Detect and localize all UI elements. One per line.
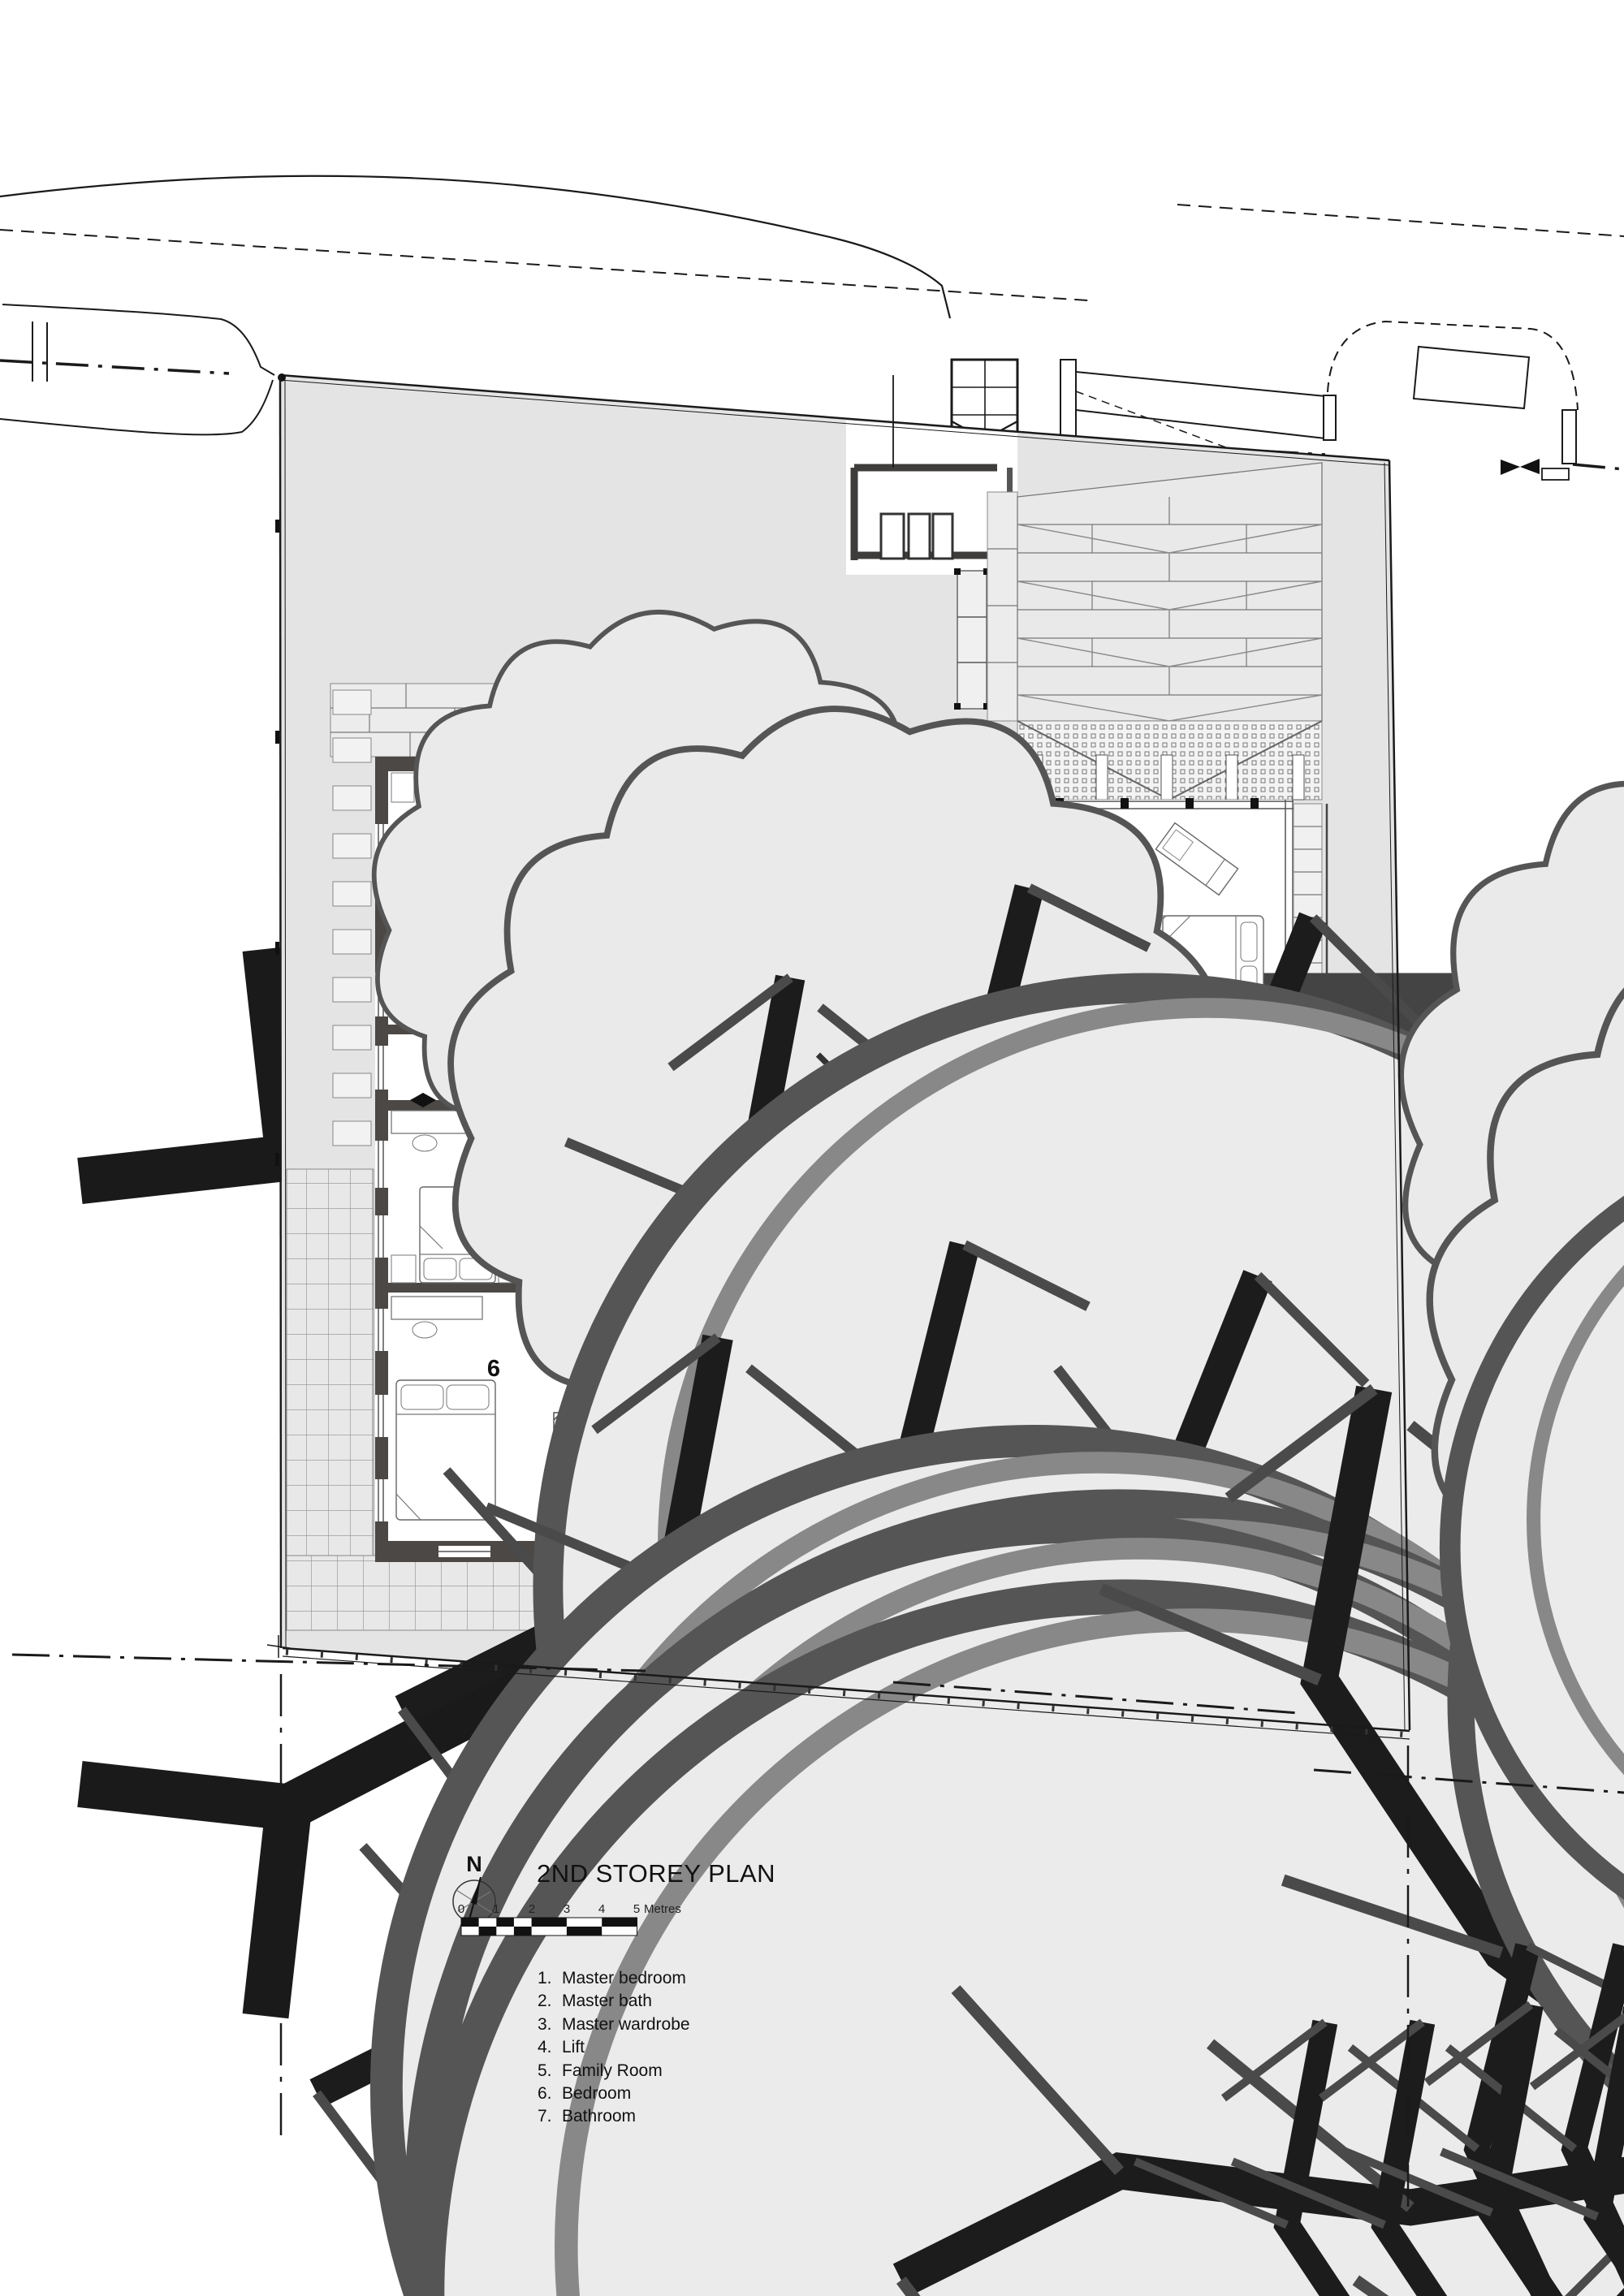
room-label-bedroom-bot: 6 — [487, 1356, 500, 1382]
legend-number: 5. — [538, 2061, 552, 2080]
legend-item-bedroom: Bedroom — [562, 2084, 631, 2103]
legend-item-bathroom: Bathroom — [562, 2107, 636, 2126]
scale-tick: 2 — [529, 1902, 535, 1916]
scale-tick: 5 — [633, 1902, 640, 1916]
legend-item-master-bath: Master bath — [562, 1992, 652, 2010]
legend-item-master-bedroom: Master bedroom — [562, 1969, 686, 1987]
gate-pier-right — [1562, 410, 1576, 464]
legend-number: 7. — [538, 2107, 552, 2126]
gate-post-box — [1542, 468, 1569, 480]
scale-unit: Metres — [644, 1902, 681, 1916]
north-label: N — [466, 1852, 482, 1876]
legend-number: 1. — [538, 1969, 552, 1987]
road-inner-kerb-left — [2, 304, 274, 375]
road-centerline-left — [0, 360, 229, 373]
legend-number: 2. — [538, 1992, 552, 2010]
gate-pier-left — [1324, 395, 1336, 440]
driveway-kerb-marks — [32, 322, 47, 382]
road-far-edge-dashed-2 — [1177, 205, 1624, 236]
gate-swing-icon — [1501, 459, 1540, 475]
floor-plan-canvas: 6 7 7 6 6 7 1 2 3 4 5 N — [0, 0, 1624, 2296]
legend-number: 3. — [538, 2015, 552, 2034]
tile-strip — [287, 1169, 374, 1556]
scale-tick: 4 — [598, 1902, 605, 1916]
legend-item-lift: Lift — [562, 2038, 585, 2056]
scale-tick: 3 — [564, 1902, 570, 1916]
legend-number: 4. — [538, 2038, 552, 2056]
trellis-band — [1017, 721, 1322, 800]
scale-tick: 1 — [493, 1902, 499, 1916]
legend-item-family-room: Family Room — [562, 2061, 663, 2080]
scale-tick: 0 — [458, 1902, 464, 1916]
legend-item-master-wardrobe: Master wardrobe — [562, 2015, 690, 2034]
plan-title: 2ND STOREY PLAN — [537, 1859, 775, 1888]
drawing-sheet: 6 7 7 6 6 7 1 2 3 4 5 N — [0, 0, 1624, 2296]
driveway-apron-slab — [1414, 347, 1529, 408]
roof-deck — [1017, 463, 1322, 721]
road-kerbs-right — [1076, 372, 1325, 438]
road-inner-kerb-left2 — [0, 380, 273, 434]
road-far-edge-dashed — [0, 230, 1088, 300]
road-outer-kerb — [0, 176, 950, 318]
legend-number: 6. — [538, 2084, 552, 2103]
planter-edge-strip — [987, 492, 1017, 721]
